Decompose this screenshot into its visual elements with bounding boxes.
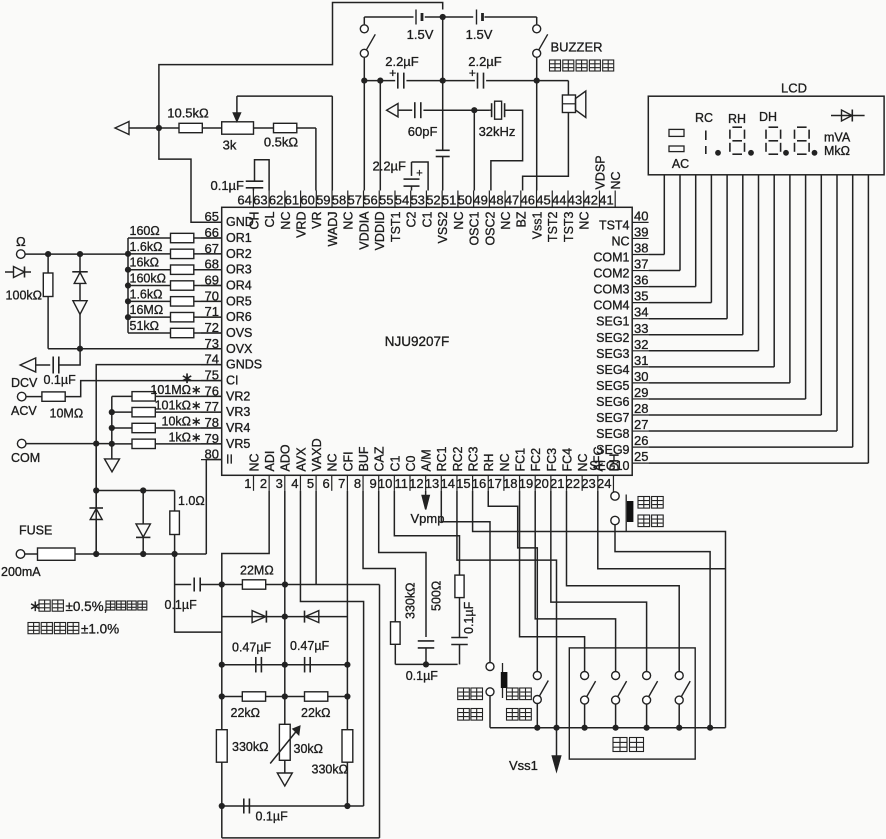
svg-text:63: 63	[253, 193, 267, 208]
svg-text:NC: NC	[498, 453, 512, 471]
svg-text:45: 45	[536, 193, 550, 208]
svg-text:10MΩ: 10MΩ	[50, 407, 84, 421]
svg-text:25: 25	[634, 449, 648, 464]
svg-text:∗: ∗	[29, 598, 42, 615]
svg-text:Ω: Ω	[16, 234, 26, 249]
svg-text:330kΩ: 330kΩ	[404, 583, 418, 619]
svg-text:10.5kΩ: 10.5kΩ	[167, 106, 209, 121]
svg-text:NC: NC	[452, 212, 466, 230]
svg-text:33: 33	[634, 321, 648, 336]
svg-text:13: 13	[425, 476, 439, 491]
svg-text:VSS2: VSS2	[436, 211, 450, 243]
svg-text:16: 16	[472, 476, 486, 491]
svg-text:61: 61	[285, 193, 299, 208]
svg-text:BUF: BUF	[357, 446, 371, 471]
svg-text:+: +	[416, 168, 422, 180]
svg-text:29: 29	[634, 385, 648, 400]
svg-text:SEG7: SEG7	[596, 411, 629, 425]
svg-text:VR2: VR2	[226, 389, 250, 403]
svg-text:101kΩ∗: 101kΩ∗	[155, 399, 202, 413]
svg-text:C2: C2	[405, 211, 419, 227]
svg-text:FC1: FC1	[513, 448, 527, 472]
svg-text:NC: NC	[611, 234, 629, 248]
svg-text:30: 30	[634, 369, 648, 384]
svg-text:VDDID: VDDID	[373, 212, 387, 251]
svg-text:27: 27	[634, 417, 648, 432]
svg-text:SEG1: SEG1	[596, 315, 629, 329]
svg-text:22kΩ: 22kΩ	[231, 706, 261, 720]
svg-text:49: 49	[473, 193, 487, 208]
svg-text:C0: C0	[404, 455, 418, 471]
svg-text:20: 20	[534, 476, 548, 491]
svg-text:41: 41	[599, 193, 613, 208]
svg-text:WADJ: WADJ	[326, 212, 340, 247]
svg-text:Vss1: Vss1	[509, 758, 538, 773]
svg-text:RC2: RC2	[451, 446, 465, 471]
svg-text:OR4: OR4	[226, 279, 252, 293]
svg-text:C1: C1	[388, 455, 402, 471]
svg-text:200mA: 200mA	[1, 565, 41, 579]
svg-text:OR3: OR3	[226, 263, 252, 277]
svg-text:LCD: LCD	[781, 81, 807, 96]
svg-text:1.6kΩ: 1.6kΩ	[130, 240, 163, 254]
svg-text:RC: RC	[695, 111, 713, 125]
svg-text:32: 32	[634, 337, 648, 352]
svg-text:2.2µF: 2.2µF	[468, 54, 502, 69]
svg-text:47: 47	[505, 193, 519, 208]
svg-text:SEG9: SEG9	[596, 443, 629, 457]
svg-text:GNDS: GNDS	[226, 358, 262, 372]
svg-text:COM: COM	[11, 451, 40, 465]
svg-text:BZ: BZ	[515, 211, 529, 227]
svg-text:0.47µF: 0.47µF	[232, 641, 272, 655]
svg-text:1kΩ∗: 1kΩ∗	[168, 430, 201, 444]
svg-text:28: 28	[634, 401, 648, 416]
svg-text:SEG8: SEG8	[596, 427, 629, 441]
svg-text:0.1µF: 0.1µF	[210, 178, 244, 193]
svg-text:SEG6: SEG6	[596, 395, 629, 409]
svg-text:VAXD: VAXD	[310, 438, 324, 471]
svg-text:NC: NC	[578, 212, 592, 230]
svg-text:22MΩ: 22MΩ	[240, 564, 274, 578]
svg-text:NC: NC	[247, 453, 261, 471]
svg-text:59: 59	[316, 193, 330, 208]
svg-text:160kΩ: 160kΩ	[130, 272, 166, 286]
svg-text:NC: NC	[499, 212, 513, 230]
svg-text:1.0Ω: 1.0Ω	[178, 494, 205, 508]
svg-text:FC2: FC2	[529, 448, 543, 472]
svg-text:0.47µF: 0.47µF	[290, 639, 330, 653]
svg-text:21: 21	[550, 476, 564, 491]
svg-text:SEG4: SEG4	[596, 363, 629, 377]
svg-text:OVX: OVX	[226, 342, 253, 356]
svg-text:500Ω: 500Ω	[430, 581, 444, 611]
svg-text:TST2: TST2	[546, 211, 560, 242]
svg-text:16kΩ: 16kΩ	[130, 256, 160, 270]
svg-text:64: 64	[237, 193, 251, 208]
svg-text:14: 14	[440, 476, 454, 491]
svg-text:58: 58	[332, 193, 346, 208]
svg-text:60pF: 60pF	[408, 124, 438, 139]
svg-text:1.5V: 1.5V	[407, 27, 434, 42]
svg-text:OR6: OR6	[226, 310, 252, 324]
svg-text:0.1µF: 0.1µF	[406, 669, 439, 683]
svg-text:NC: NC	[576, 453, 590, 471]
svg-text:1.5V: 1.5V	[466, 27, 493, 42]
svg-text:OR2: OR2	[226, 247, 252, 261]
svg-text:46: 46	[521, 193, 535, 208]
svg-text:NC: NC	[279, 212, 293, 230]
svg-text:0.5kΩ: 0.5kΩ	[264, 135, 299, 150]
svg-text:100kΩ: 100kΩ	[6, 289, 42, 303]
svg-text:±0.5%,: ±0.5%,	[66, 599, 108, 614]
svg-text:9: 9	[369, 476, 376, 491]
svg-text:MkΩ: MkΩ	[824, 144, 850, 158]
svg-text:SEG2: SEG2	[596, 331, 629, 345]
svg-text:ACV: ACV	[11, 404, 37, 418]
svg-text:VR3: VR3	[226, 405, 250, 419]
svg-text:330kΩ: 330kΩ	[312, 763, 348, 777]
svg-text:44: 44	[552, 193, 566, 208]
svg-text:54: 54	[395, 193, 409, 208]
svg-text:Vss1: Vss1	[530, 211, 544, 239]
svg-text:43: 43	[568, 193, 582, 208]
svg-text:VRD: VRD	[294, 212, 308, 238]
svg-text:7: 7	[338, 476, 345, 491]
svg-text:55: 55	[379, 193, 393, 208]
svg-text:GND: GND	[226, 215, 254, 229]
svg-text:36: 36	[634, 273, 648, 288]
svg-text:AC: AC	[672, 157, 689, 171]
svg-text:11: 11	[395, 476, 409, 491]
svg-text:24: 24	[597, 476, 611, 491]
svg-text:16MΩ: 16MΩ	[130, 303, 164, 317]
svg-text:RH: RH	[728, 112, 746, 126]
svg-text:35: 35	[634, 289, 648, 304]
svg-text:COM2: COM2	[593, 267, 629, 281]
svg-text:CL: CL	[263, 211, 277, 227]
svg-text:OR1: OR1	[226, 231, 252, 245]
svg-text:0.1µF: 0.1µF	[44, 373, 77, 387]
svg-text:57: 57	[348, 193, 362, 208]
svg-text:19: 19	[519, 476, 533, 491]
svg-text:12: 12	[409, 476, 423, 491]
svg-text:2: 2	[260, 476, 267, 491]
svg-text:FC4: FC4	[560, 448, 574, 472]
svg-text:FUSE: FUSE	[19, 524, 52, 538]
svg-text:TST1: TST1	[389, 211, 403, 242]
svg-text:60: 60	[300, 193, 314, 208]
svg-text:±1.0%: ±1.0%	[81, 622, 119, 637]
svg-text:NC: NC	[342, 212, 356, 230]
svg-text:1.6kΩ: 1.6kΩ	[130, 287, 163, 301]
svg-text:mVA: mVA	[824, 131, 851, 145]
svg-text:40: 40	[634, 208, 648, 223]
svg-text:6: 6	[323, 476, 330, 491]
svg-text:ADO: ADO	[279, 444, 293, 471]
svg-text:VR4: VR4	[226, 421, 250, 435]
svg-text:0.1µF: 0.1µF	[165, 598, 198, 612]
svg-text:2.2µF: 2.2µF	[372, 159, 406, 174]
svg-text:39: 39	[634, 224, 648, 239]
svg-text:RH: RH	[482, 453, 496, 471]
svg-text:OSC2: OSC2	[483, 211, 497, 245]
svg-text:5: 5	[307, 476, 314, 491]
svg-text:OVS: OVS	[226, 326, 252, 340]
svg-text:Vpmp: Vpmp	[411, 511, 445, 526]
svg-text:22kΩ: 22kΩ	[301, 706, 331, 720]
svg-text:OSC1: OSC1	[468, 211, 482, 245]
svg-text:CI: CI	[226, 374, 239, 388]
svg-text:26: 26	[634, 433, 648, 448]
svg-text:SEG3: SEG3	[596, 347, 629, 361]
svg-text:101MΩ∗: 101MΩ∗	[150, 383, 201, 397]
svg-text:10kΩ∗: 10kΩ∗	[162, 414, 202, 428]
svg-text:23: 23	[581, 476, 595, 491]
svg-text:51: 51	[442, 193, 456, 208]
svg-text:50: 50	[458, 193, 472, 208]
svg-text:DH: DH	[759, 110, 777, 124]
svg-text:ADI: ADI	[263, 451, 277, 472]
svg-text:RC1: RC1	[435, 446, 449, 471]
svg-text:DCV: DCV	[11, 376, 38, 390]
svg-text:34: 34	[634, 305, 648, 320]
svg-text:32kHz: 32kHz	[479, 124, 516, 139]
svg-text:NJU9207F: NJU9207F	[385, 334, 450, 349]
svg-text:COM4: COM4	[593, 299, 629, 313]
svg-text:22: 22	[566, 476, 580, 491]
svg-text:VDDIA: VDDIA	[357, 211, 371, 250]
svg-text:42: 42	[583, 193, 597, 208]
svg-text:NC: NC	[609, 171, 623, 189]
svg-text:II: II	[226, 453, 233, 467]
svg-text:62: 62	[269, 193, 283, 208]
svg-text:51kΩ: 51kΩ	[130, 319, 160, 333]
svg-text:TST3: TST3	[562, 211, 576, 242]
svg-text:0.1µF: 0.1µF	[256, 810, 289, 824]
svg-text:VR5: VR5	[226, 437, 250, 451]
svg-text:TST4: TST4	[599, 218, 630, 232]
svg-text:0.1µF: 0.1µF	[462, 601, 476, 634]
svg-text:CFI: CFI	[341, 451, 355, 471]
svg-text:A/M: A/M	[420, 449, 434, 471]
svg-text:52: 52	[426, 193, 440, 208]
svg-text:COM1: COM1	[593, 251, 629, 265]
svg-text:COM3: COM3	[593, 283, 629, 297]
svg-text:38: 38	[634, 241, 648, 256]
svg-text:VR: VR	[310, 212, 324, 229]
svg-text:48: 48	[489, 193, 503, 208]
svg-text:330kΩ: 330kΩ	[232, 740, 268, 754]
svg-text:3: 3	[276, 476, 283, 491]
svg-text:56: 56	[363, 193, 377, 208]
svg-text:1: 1	[244, 476, 251, 491]
svg-text:3k: 3k	[223, 138, 237, 153]
svg-text:SEG10: SEG10	[589, 459, 629, 473]
svg-text:FC3: FC3	[545, 448, 559, 472]
svg-text:8: 8	[354, 476, 361, 491]
svg-text:SEG5: SEG5	[596, 379, 629, 393]
svg-text:OR5: OR5	[226, 294, 252, 308]
svg-text:17: 17	[487, 476, 501, 491]
svg-text:2.2µF: 2.2µF	[385, 54, 419, 69]
svg-text:37: 37	[634, 257, 648, 272]
svg-text:30kΩ: 30kΩ	[294, 742, 324, 756]
svg-text:RC3: RC3	[467, 446, 481, 471]
svg-text:15: 15	[456, 476, 470, 491]
svg-text:10: 10	[378, 476, 392, 491]
svg-text:VDSP: VDSP	[593, 155, 607, 189]
svg-text:CAZ: CAZ	[373, 446, 387, 471]
svg-text:18: 18	[503, 476, 517, 491]
svg-text:4: 4	[291, 476, 298, 491]
svg-text:BUZZER: BUZZER	[551, 40, 603, 55]
svg-text:53: 53	[410, 193, 424, 208]
svg-text:160Ω: 160Ω	[130, 224, 160, 238]
svg-text:31: 31	[634, 353, 648, 368]
svg-text:NC: NC	[326, 453, 340, 471]
svg-text:C1: C1	[420, 211, 434, 227]
svg-text:AVX: AVX	[294, 447, 308, 472]
